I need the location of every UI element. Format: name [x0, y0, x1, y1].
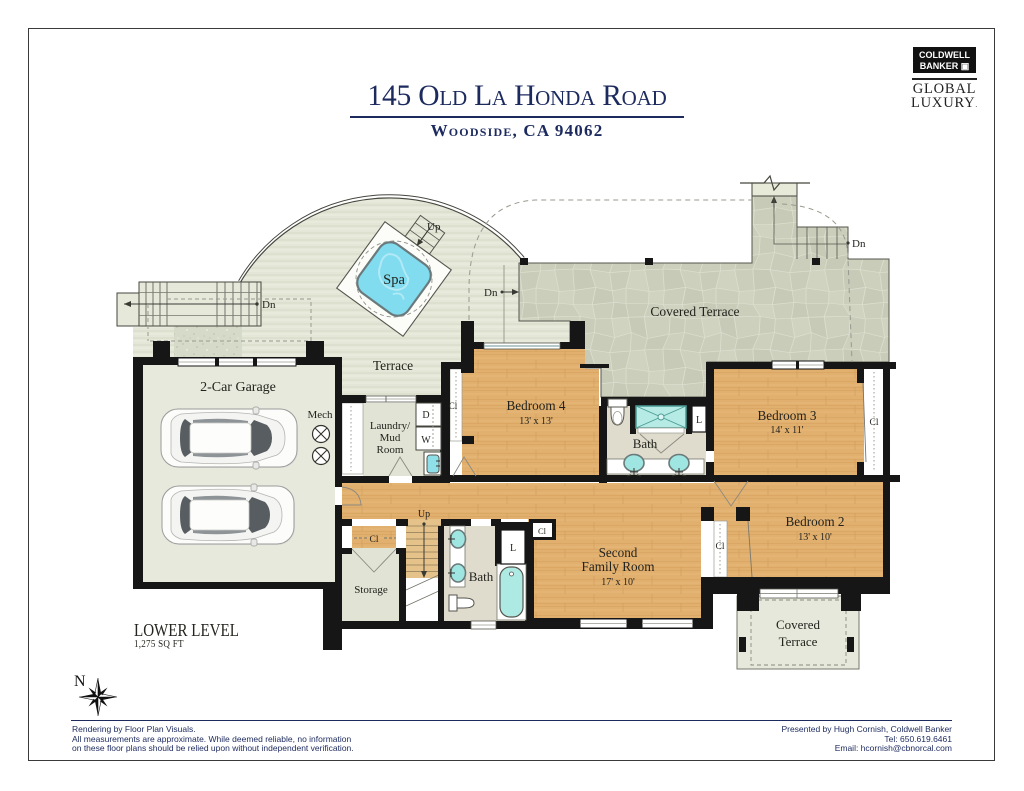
- svg-text:17' x 10': 17' x 10': [601, 577, 635, 588]
- svg-text:13' x 10': 13' x 10': [798, 532, 832, 543]
- svg-text:L: L: [510, 543, 516, 554]
- svg-text:2-Car Garage: 2-Car Garage: [200, 380, 276, 395]
- svg-text:Mech: Mech: [307, 409, 333, 421]
- svg-text:Up: Up: [427, 221, 441, 233]
- svg-text:Cl: Cl: [716, 542, 725, 552]
- svg-text:Dn: Dn: [262, 299, 276, 311]
- svg-text:Covered Terrace: Covered Terrace: [650, 304, 739, 319]
- svg-text:Cl: Cl: [538, 526, 547, 536]
- svg-text:Covered: Covered: [776, 617, 821, 632]
- svg-text:Second: Second: [599, 545, 638, 560]
- svg-text:Spa: Spa: [383, 272, 405, 288]
- svg-text:Laundry/: Laundry/: [370, 420, 411, 432]
- svg-text:Terrace: Terrace: [779, 634, 818, 649]
- svg-text:Up: Up: [418, 509, 430, 520]
- svg-text:W: W: [421, 435, 431, 446]
- svg-text:Cl: Cl: [449, 401, 458, 411]
- svg-text:Dn: Dn: [484, 287, 498, 299]
- svg-text:Storage: Storage: [354, 584, 388, 596]
- svg-text:Bath: Bath: [633, 436, 658, 451]
- svg-text:Terrace: Terrace: [373, 358, 413, 373]
- svg-text:Bedroom 3: Bedroom 3: [758, 408, 817, 423]
- svg-text:Cl: Cl: [370, 535, 379, 545]
- svg-text:N: N: [74, 673, 86, 690]
- svg-text:D: D: [422, 410, 429, 421]
- svg-text:Family Room: Family Room: [582, 559, 656, 574]
- svg-text:Mud: Mud: [380, 432, 401, 444]
- svg-text:Bath: Bath: [469, 569, 494, 584]
- svg-text:Dn: Dn: [852, 238, 866, 250]
- svg-text:Bedroom 4: Bedroom 4: [507, 398, 566, 413]
- svg-text:Room: Room: [377, 444, 404, 456]
- svg-text:Bedroom 2: Bedroom 2: [786, 514, 845, 529]
- svg-text:Cl: Cl: [870, 418, 879, 428]
- svg-text:14' x 11': 14' x 11': [770, 425, 803, 436]
- svg-text:13' x 13': 13' x 13': [519, 416, 553, 427]
- svg-text:L: L: [696, 415, 702, 426]
